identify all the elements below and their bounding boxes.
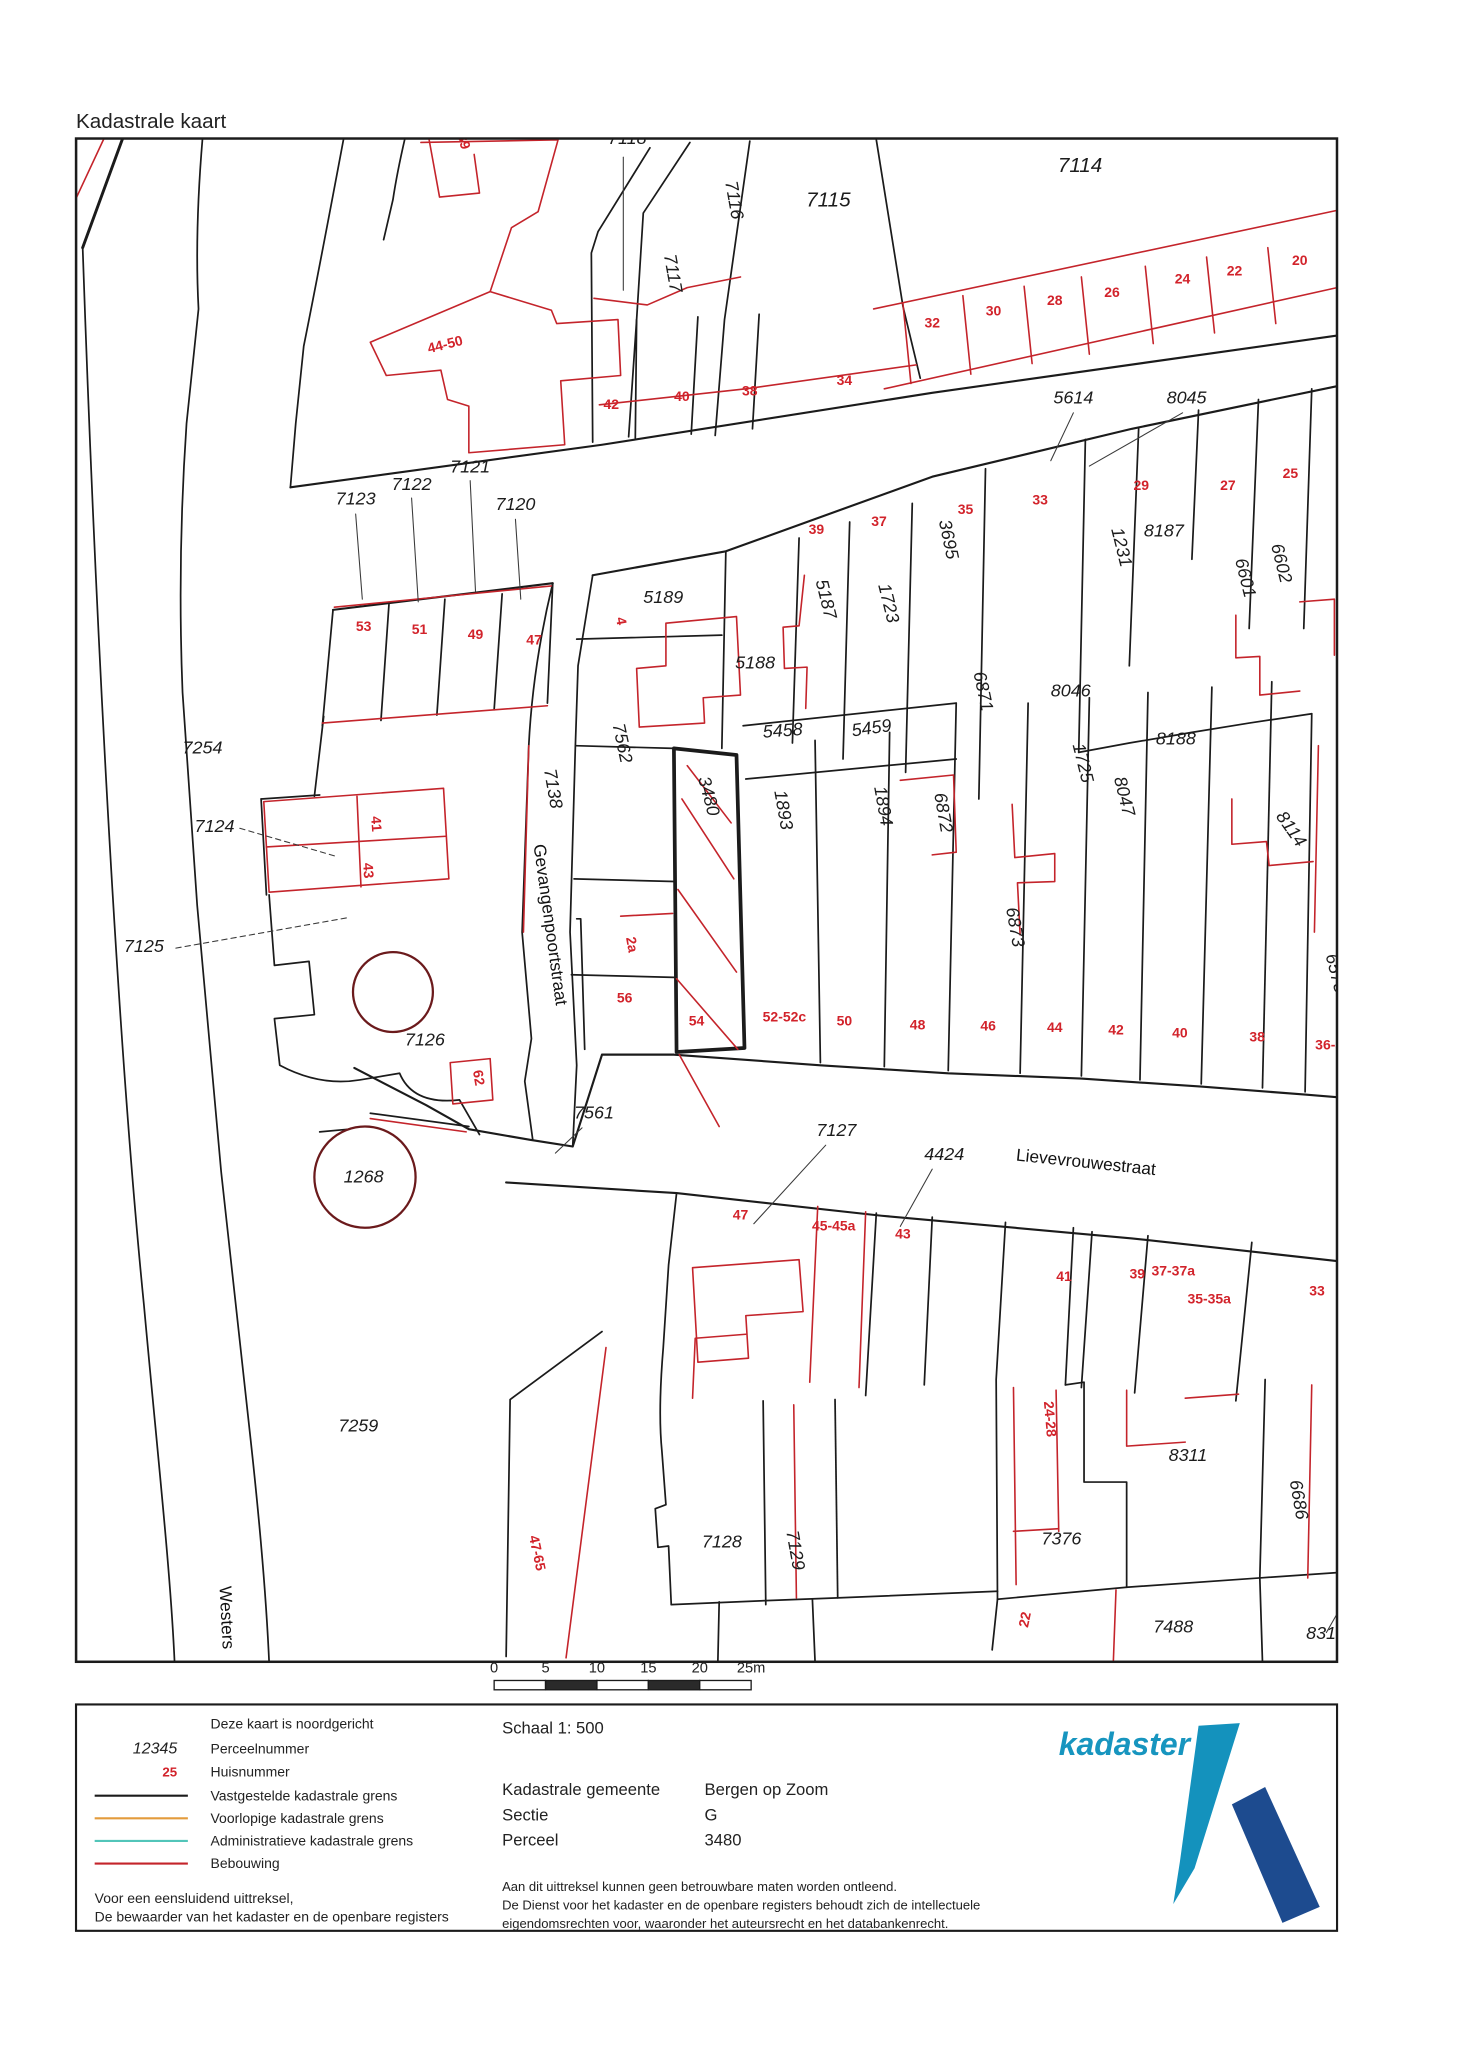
parcel-boundary-line xyxy=(290,336,1337,488)
building-line xyxy=(1145,266,1153,343)
legend-sample-parcel-number: 12345 xyxy=(133,1741,178,1758)
parcel-number-label: 1231 xyxy=(1107,525,1136,569)
house-number-label: 41 xyxy=(368,816,385,833)
parcel-number-label: 5459 xyxy=(850,715,892,740)
building-line xyxy=(621,913,673,916)
parcel-boundary-line xyxy=(1140,692,1148,1079)
info-block: Schaal 1: 500 Kadastrale gemeente Bergen… xyxy=(502,1719,980,1931)
house-number-label: 39 xyxy=(1130,1265,1146,1281)
building-line xyxy=(264,788,449,892)
parcel-number-label: 7127 xyxy=(816,1120,857,1140)
building-line xyxy=(266,836,446,847)
parcel-boundary-line xyxy=(812,1599,815,1662)
parcel-number-label: 6602 xyxy=(1267,541,1296,585)
house-number-label: 47-65 xyxy=(526,1534,549,1572)
parcel-number-label: 1893 xyxy=(770,788,797,831)
parcel-boundary-line xyxy=(322,610,333,726)
parcel-number-label: 7123 xyxy=(336,489,376,509)
parcel-number-label: 7121 xyxy=(450,457,490,477)
kadaster-logo-text: kadaster xyxy=(1059,1726,1192,1762)
house-number-label: 54 xyxy=(689,1012,705,1028)
leader-line xyxy=(470,481,475,592)
house-number-label: 43 xyxy=(360,862,377,879)
parcel-number-label: 1894 xyxy=(870,784,897,827)
house-number-label: 47 xyxy=(526,631,542,647)
parcel-boundary-line xyxy=(570,575,593,1146)
courtyard-boundary-circle xyxy=(353,952,433,1032)
parcel-number-label: 8188 xyxy=(1156,728,1196,748)
parcel-boundary-line xyxy=(997,1573,1337,1600)
parcel-boundary-line xyxy=(1065,1228,1073,1385)
parcel-number-label: 6872 xyxy=(930,791,957,834)
house-number-label: 40 xyxy=(1172,1024,1188,1040)
attest-block: Voor een eensluidend uittreksel, De bewa… xyxy=(95,1890,449,1925)
building-line xyxy=(566,1348,606,1658)
building-line xyxy=(76,138,104,198)
house-number-label: 29 xyxy=(1134,477,1150,493)
parcel-number-label: 7561 xyxy=(574,1103,614,1123)
legend-item-label-0: Deze kaart is noordgericht xyxy=(211,1715,374,1731)
parcel-number-label: 7122 xyxy=(392,474,432,494)
house-number-label: 43 xyxy=(895,1225,911,1241)
parcel-boundary-line xyxy=(979,469,986,799)
parcel-boundary-line xyxy=(314,716,323,796)
parcel-number-label: 5614 xyxy=(1053,387,1093,407)
scale-bar-tick-label: 0 xyxy=(490,1660,498,1676)
parcel-boundary-line xyxy=(83,138,123,247)
leader-line xyxy=(412,498,419,602)
parcel-number-label: 7115 xyxy=(806,188,851,211)
building-line xyxy=(963,296,971,375)
attest-line-1: Voor een eensluidend uittreksel, xyxy=(95,1890,294,1906)
parcel-boundary-line xyxy=(948,703,956,1071)
house-number-label: 34 xyxy=(837,372,853,388)
parcel-number-label: 3480 xyxy=(694,774,724,818)
parcel-boundary-line xyxy=(866,1213,877,1395)
house-number-label: 35 xyxy=(958,501,974,517)
parcel-boundary-line xyxy=(1260,1380,1265,1578)
building-line xyxy=(679,1055,719,1127)
legend-item-label-6: Bebouwing xyxy=(211,1855,280,1871)
parcel-boundary-line xyxy=(924,1217,932,1385)
house-number-label: 50 xyxy=(837,1012,853,1028)
house-number-label: 46 xyxy=(980,1018,996,1034)
parcel-boundary-line xyxy=(1236,1242,1252,1400)
parcel-number-label: 1725 xyxy=(1069,741,1098,786)
house-number-label: 20 xyxy=(1292,252,1308,268)
parcel-boundary-line xyxy=(655,1193,676,1604)
building-line xyxy=(334,586,551,607)
house-number-label: 62 xyxy=(470,1069,488,1087)
parcel-boundary-line xyxy=(381,605,389,721)
gemeente-value: Bergen op Zoom xyxy=(705,1780,829,1799)
house-number-label: 49 xyxy=(468,626,484,642)
parcel-boundary-line xyxy=(1065,1382,1126,1587)
sectie-label: Sectie xyxy=(502,1805,548,1824)
parcel-boundary-line xyxy=(671,1591,997,1604)
parcel-number-label: 8114 xyxy=(1272,807,1311,850)
parcel-number-label: 7126 xyxy=(405,1029,445,1049)
parcel-number-label: 6873 xyxy=(1002,906,1029,949)
parcel-boundary-line xyxy=(384,138,405,239)
house-number-label: 33 xyxy=(1309,1283,1325,1299)
building-line xyxy=(859,1212,866,1388)
scale-bar: 0510152025m xyxy=(490,1660,765,1689)
parcel-number-label: 6601 xyxy=(1231,556,1260,600)
parcel-boundary-line xyxy=(494,594,502,710)
house-number-label: 38 xyxy=(742,382,758,398)
building-line xyxy=(1113,1590,1116,1662)
dashed-leader-line xyxy=(240,828,336,856)
parcel-boundary-line xyxy=(1262,682,1271,1088)
parcel-number-label: 8045 xyxy=(1167,387,1208,407)
map-layer: 7118711671177115711456148045712371227121… xyxy=(76,128,1351,1662)
parcel-boundary-line xyxy=(763,1401,766,1605)
kadaster-logo-mark-navy xyxy=(1232,1787,1320,1923)
leader-line xyxy=(1051,413,1074,461)
building-line xyxy=(1308,1385,1312,1578)
parcel-number-label: 8187 xyxy=(1144,521,1185,541)
house-number-label: 52-52c xyxy=(763,1008,807,1024)
parcel-boundary-line xyxy=(1192,410,1199,559)
legend-items: Deze kaart is noordgericht12345Perceelnu… xyxy=(95,1715,414,1871)
house-number-label: 2a xyxy=(623,936,641,954)
house-number-label: 22 xyxy=(1227,263,1243,279)
parcel-boundary-line xyxy=(815,740,820,1062)
scale-bar-tick-label: 25m xyxy=(737,1660,765,1676)
gemeente-label: Kadastrale gemeente xyxy=(502,1780,660,1799)
parcel-boundary-line xyxy=(1201,687,1212,1084)
parcel-number-label: 7120 xyxy=(495,494,535,514)
parcel-number-label: 8311 xyxy=(1169,1445,1208,1465)
leader-line xyxy=(356,514,363,599)
parcel-number-label: 7562 xyxy=(609,721,637,764)
building-line xyxy=(370,292,620,453)
building-line xyxy=(678,890,737,973)
house-number-label: 37-37a xyxy=(1152,1263,1196,1279)
parcel-boundary-line xyxy=(571,975,674,978)
building-line xyxy=(903,304,911,384)
legend-sample-house-number: 25 xyxy=(162,1764,177,1779)
parcel-boundary-line xyxy=(792,538,799,743)
scale-bar-tick-label: 15 xyxy=(640,1660,656,1676)
parcel-boundary-line xyxy=(1304,389,1312,629)
house-number-label: 22 xyxy=(1015,1610,1034,1629)
house-number-label: 42 xyxy=(1108,1022,1124,1038)
parcel-boundary-line xyxy=(906,503,913,772)
house-number-label: 44 xyxy=(1047,1019,1063,1035)
house-number-label: 32 xyxy=(924,315,940,331)
parcel-boundary-line xyxy=(577,635,722,639)
house-number-label: 33 xyxy=(1032,492,1048,508)
house-number-label: 24-28 xyxy=(1041,1401,1060,1438)
house-number-label: 53 xyxy=(356,618,372,634)
house-number-label: 44-50 xyxy=(426,332,465,356)
house-number-label: 26 xyxy=(1104,284,1120,300)
parcel-boundary-line xyxy=(437,599,445,715)
page-title: Kadastrale kaart xyxy=(76,110,226,133)
kadastrale-kaart-document: Kadastrale kaart 71187116711771157114561… xyxy=(0,0,1465,2048)
house-number-label: 38 xyxy=(1249,1028,1265,1044)
parcel-boundary-line xyxy=(1020,703,1028,1073)
building-line xyxy=(1236,615,1300,695)
parcel-number-label: 7114 xyxy=(1058,154,1102,177)
building-line xyxy=(677,979,738,1050)
house-number-label: 36-36 xyxy=(1315,1036,1351,1052)
building-line xyxy=(1207,257,1215,333)
parcel-number-label: 6871 xyxy=(969,670,997,713)
parcel-number-label: 8047 xyxy=(1110,774,1139,819)
building-line xyxy=(421,140,558,292)
legend-item-label-4: Voorlopige kadastrale grens xyxy=(211,1810,384,1826)
parcel-boundary-line xyxy=(1260,1578,1263,1662)
house-number-label: 48 xyxy=(910,1016,926,1032)
building-line xyxy=(884,288,1337,389)
house-number-label: 40 xyxy=(674,388,690,404)
house-number-label: 42 xyxy=(604,396,620,412)
parcel-number-label: 4424 xyxy=(924,1144,964,1164)
parcel-number-label: 7138 xyxy=(540,767,567,810)
house-number-label: 27 xyxy=(1220,477,1236,493)
parcel-boundary-line xyxy=(269,895,479,1135)
perceel-value: 3480 xyxy=(705,1831,742,1850)
house-number-label: 28 xyxy=(1047,292,1063,308)
parcel-number-label: 8046 xyxy=(1051,680,1091,700)
parcel-number-label: 7259 xyxy=(338,1415,378,1435)
building-line xyxy=(322,706,547,723)
parcel-boundary-line xyxy=(181,138,269,1661)
parcel-number-label: 7376 xyxy=(1041,1529,1081,1549)
house-number-label: 30 xyxy=(986,303,1002,319)
parcel-number-label: 7128 xyxy=(702,1531,742,1551)
parcel-number-label: 7488 xyxy=(1153,1617,1193,1637)
kadaster-logo: kadaster xyxy=(1059,1723,1320,1923)
building-line xyxy=(693,1260,804,1363)
parcel-boundary-line xyxy=(718,1602,719,1662)
parcel-number-label: 7254 xyxy=(183,738,223,758)
house-number-label: 25 xyxy=(1283,465,1299,481)
parcel-number-label: 5188 xyxy=(735,652,775,672)
scale-bar-tick-label: 20 xyxy=(692,1660,708,1676)
sectie-value: G xyxy=(705,1805,718,1824)
leader-line xyxy=(555,1128,582,1153)
parcel-number-label: 5189 xyxy=(643,587,683,607)
perceel-label: Perceel xyxy=(502,1831,558,1850)
house-number-label: 51 xyxy=(412,621,428,637)
parcel-boundary-line xyxy=(290,138,343,487)
parcel-boundary-line xyxy=(843,522,850,759)
parcel-number-label: 7124 xyxy=(195,816,235,836)
dashed-leader-line xyxy=(176,917,349,948)
parcel-boundary-line xyxy=(992,1222,1005,1649)
parcel-number-label: 3695 xyxy=(935,518,963,562)
building-line xyxy=(1268,248,1276,324)
house-number-label: 56 xyxy=(617,990,633,1006)
legend-item-label-5: Administratieve kadastrale grens xyxy=(211,1833,414,1849)
parcel-number-label: 7129 xyxy=(782,1529,809,1572)
street-name-label: Gevangenpoortstraat xyxy=(529,843,571,1007)
leader-line xyxy=(754,1145,826,1224)
parcel-boundary-line xyxy=(76,138,1337,1661)
parcel-number-label: 5458 xyxy=(762,719,803,742)
disclaimer-line-3: eigendomsrechten voor, waaronder het aut… xyxy=(502,1916,948,1931)
house-number-label: 39 xyxy=(809,521,825,537)
parcel-boundary-line xyxy=(506,1182,1337,1261)
scale-bar-segment xyxy=(700,1680,751,1689)
building-line xyxy=(1185,1394,1238,1398)
parcel-boundary-line xyxy=(835,1400,838,1598)
legend-item-label-1: Perceelnummer xyxy=(211,1741,310,1757)
street-name-label: Lievevrouwestraat xyxy=(1015,1145,1157,1180)
parcel-number-label: 5187 xyxy=(812,577,841,622)
house-number-label: 24 xyxy=(1175,271,1191,287)
scale-bar-segment xyxy=(494,1680,545,1689)
parcel-boundary-line xyxy=(691,317,698,434)
parcel-boundary-line xyxy=(1135,1236,1148,1393)
scale-bar-segment xyxy=(597,1680,648,1689)
building-line xyxy=(523,746,528,932)
legend-item-label-2: Huisnummer xyxy=(211,1763,291,1779)
parcel-number-label: 6686 xyxy=(1286,1478,1313,1521)
building-line xyxy=(1314,746,1318,932)
house-number-label: 4 xyxy=(613,616,630,627)
building-line xyxy=(1127,1390,1186,1446)
scale-bar-segment xyxy=(648,1680,699,1689)
house-number-label: 39 xyxy=(455,132,474,151)
house-number-label: 35-35a xyxy=(1187,1291,1231,1307)
house-number-label: 41 xyxy=(1056,1268,1072,1284)
parcel-boundary-line xyxy=(884,732,889,1066)
building-line xyxy=(599,365,916,405)
scale-bar-tick-label: 10 xyxy=(589,1660,605,1676)
house-number-label: 45-45a xyxy=(812,1217,856,1233)
parcel-number-label: 1268 xyxy=(344,1166,384,1186)
parcel-boundary-line xyxy=(722,551,726,748)
building-line xyxy=(1024,286,1032,363)
parcel-boundary-line xyxy=(591,148,650,442)
parcel-boundary-line xyxy=(1305,714,1312,1092)
attest-line-2: De bewaarder van het kadaster en de open… xyxy=(95,1908,449,1924)
house-number-label: 37 xyxy=(871,513,887,529)
scale-bar-segment xyxy=(546,1680,597,1689)
parcel-number-label: 831 xyxy=(1306,1623,1336,1643)
map-border xyxy=(76,138,1337,1661)
parcel-boundary-line xyxy=(574,879,674,882)
legend-item-label-3: Vastgestelde kadastrale grens xyxy=(211,1787,398,1803)
building-line xyxy=(693,1334,746,1398)
house-number-label: 47 xyxy=(733,1207,749,1223)
scale-text: Schaal 1: 500 xyxy=(502,1719,604,1738)
street-name-label: Westers xyxy=(216,1586,239,1650)
parcel-boundary-line xyxy=(577,919,585,1049)
parcel-boundary-line xyxy=(746,759,956,779)
parcel-number-label: 7125 xyxy=(124,936,165,956)
parcel-boundary-line xyxy=(752,314,759,429)
cadastral-extract-page: Kadastrale kaart 71187116711771157114561… xyxy=(0,0,1465,2048)
parcel-number-label: 1723 xyxy=(874,581,903,625)
parcel-boundary-line xyxy=(1081,1232,1092,1388)
scale-bar-tick-label: 5 xyxy=(541,1660,549,1676)
parcel-number-label: 7117 xyxy=(660,253,687,296)
building-line xyxy=(1013,1388,1016,1585)
building-line xyxy=(1081,277,1089,354)
disclaimer-line-2: De Dienst voor het kadaster en de openba… xyxy=(502,1898,980,1913)
leader-line xyxy=(1089,413,1182,466)
parcel-boundary-line xyxy=(1079,439,1086,752)
parcel-boundary-line xyxy=(876,140,920,378)
disclaimer-line-1: Aan dit uittreksel kunnen geen betrouwba… xyxy=(502,1879,897,1894)
